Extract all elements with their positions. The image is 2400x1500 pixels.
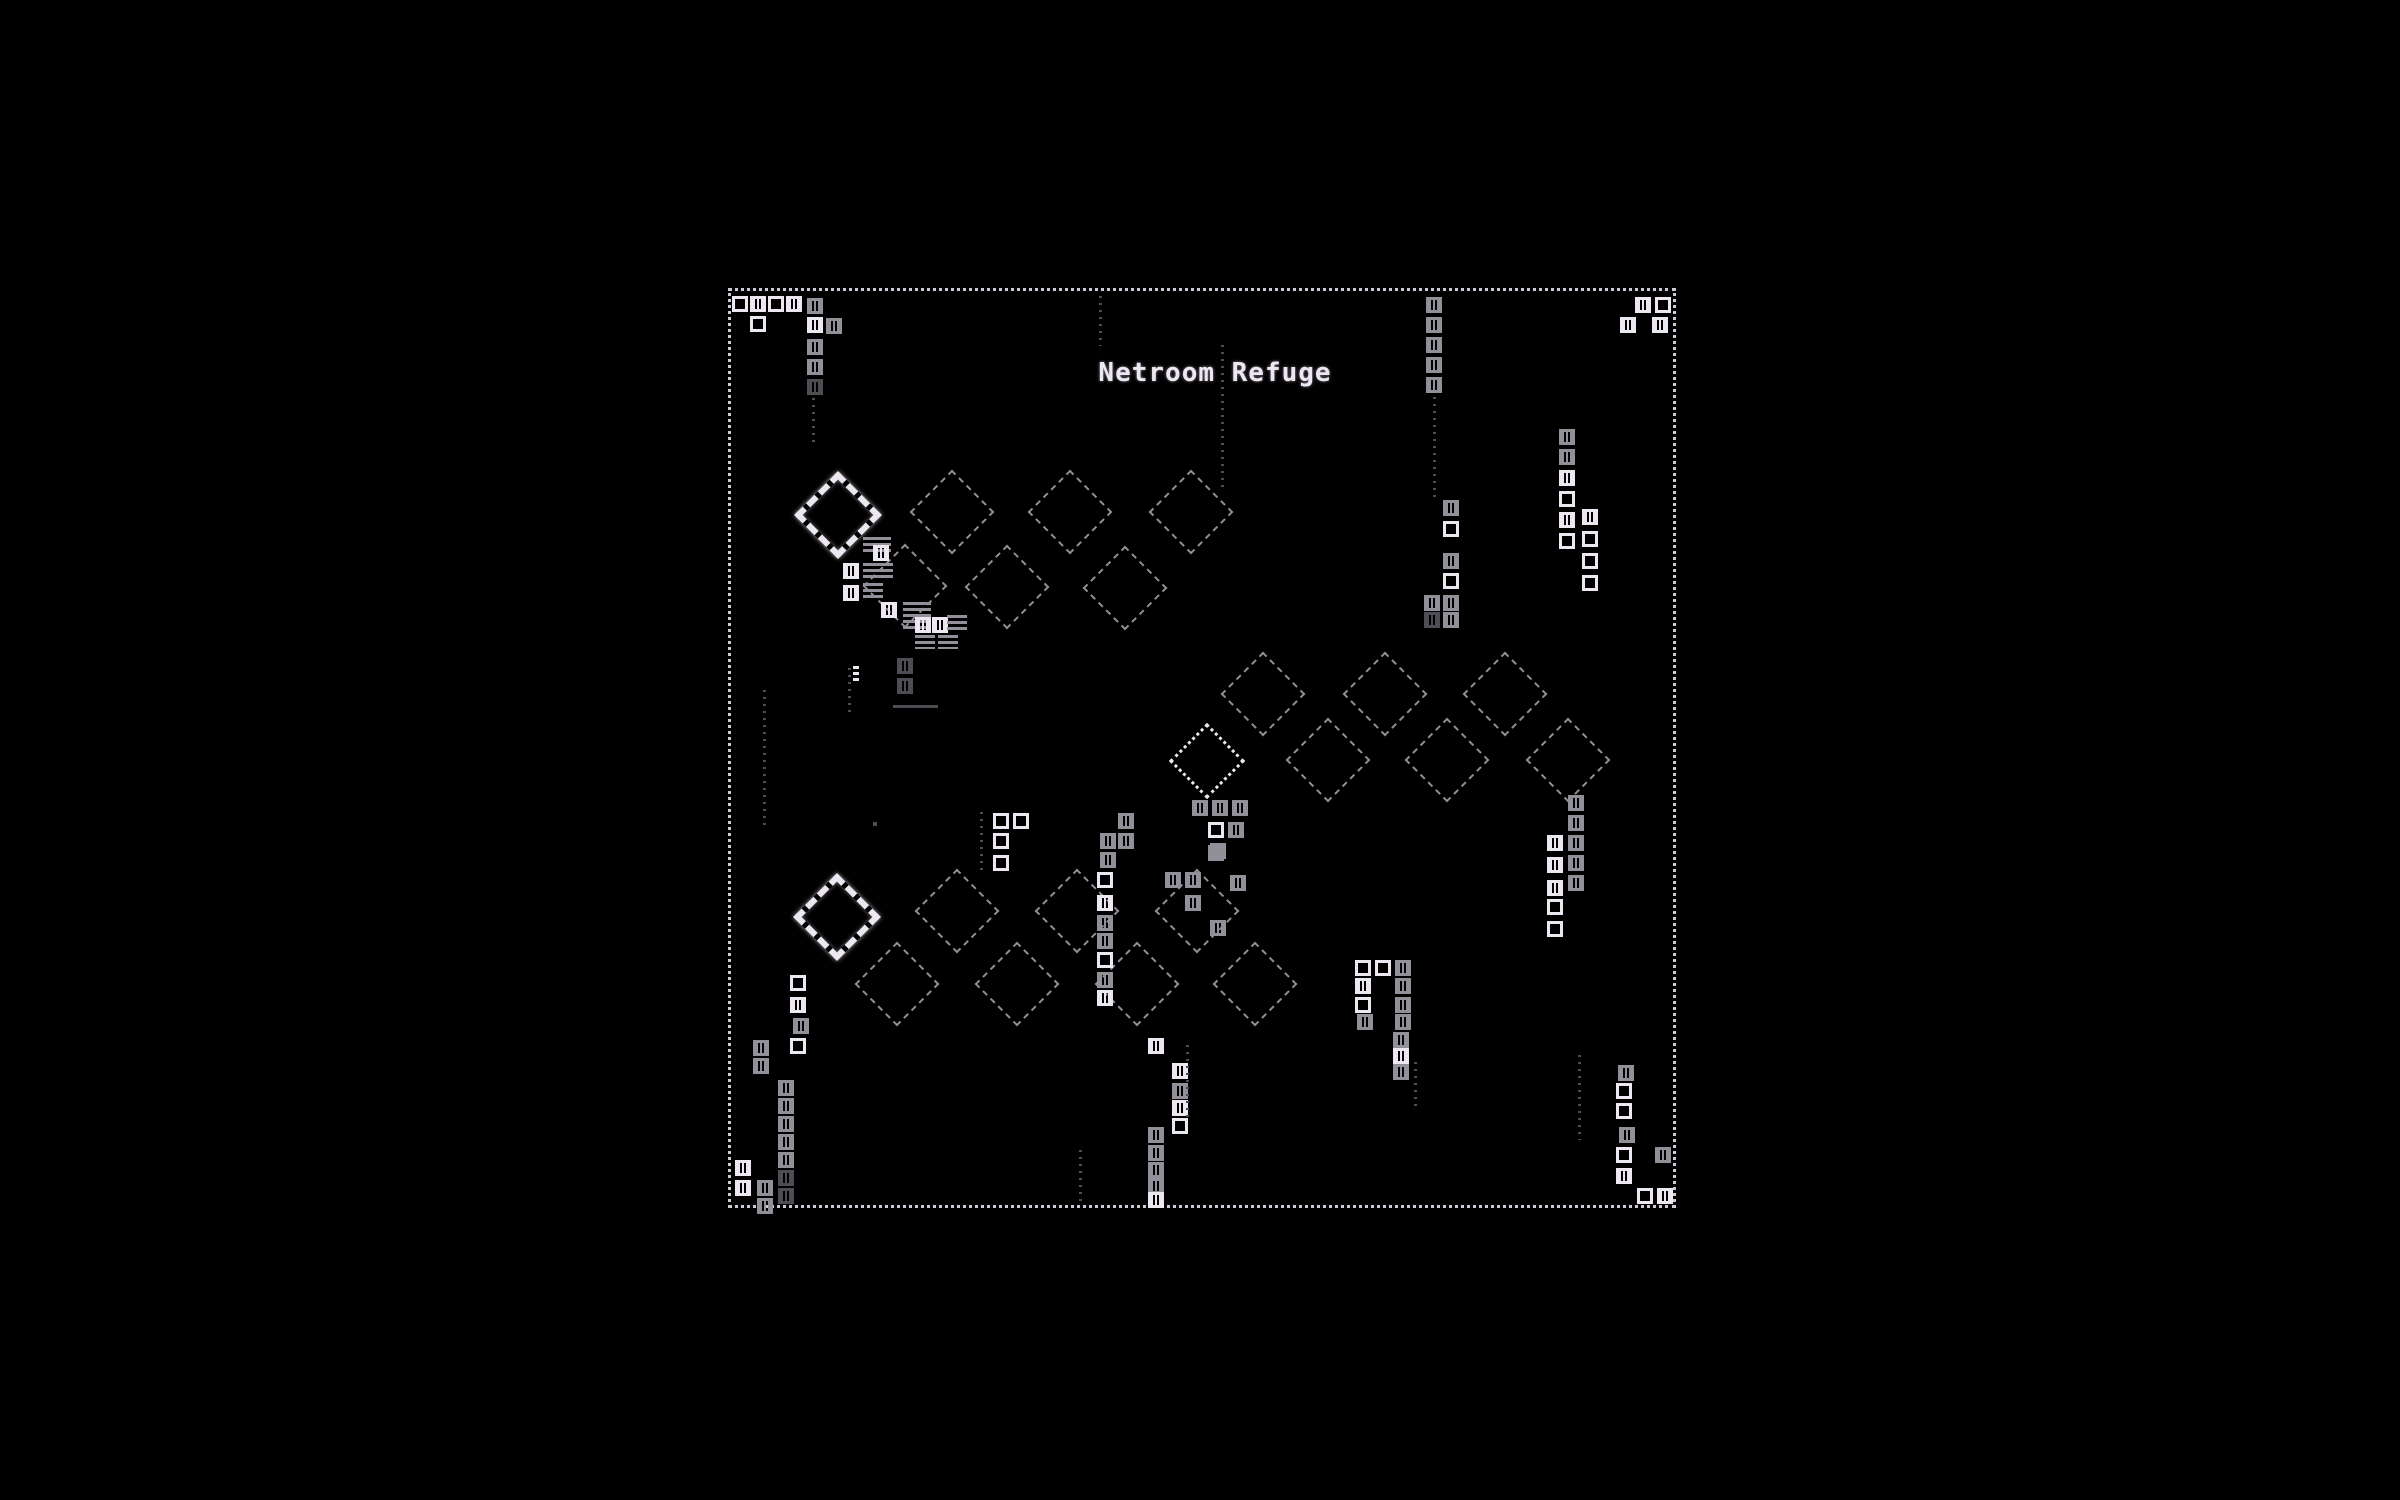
square-tile-hatched <box>1547 835 1563 851</box>
large-diamond <box>793 873 881 961</box>
square-tile-hatched <box>778 1188 794 1204</box>
square-tile-hatched <box>1165 872 1181 888</box>
square-tile-hatched <box>1148 1162 1164 1178</box>
square-tile-hatched <box>1443 612 1459 628</box>
dash-row-block <box>915 635 935 649</box>
square-tile-hatched <box>1616 1168 1632 1184</box>
square-tile-hatched <box>807 317 823 333</box>
square-tile-outline <box>768 296 784 312</box>
square-tile-hatched <box>807 359 823 375</box>
square-tile-hatched <box>1426 337 1442 353</box>
square-tile-hatched <box>1559 449 1575 465</box>
dotted-line-vertical <box>1186 1045 1189 1120</box>
dash-row-block <box>853 666 859 682</box>
square-tile-hatched <box>843 585 859 601</box>
square-tile-hatched <box>1097 972 1113 988</box>
small-diamond <box>1463 652 1548 737</box>
square-tile-outline <box>1443 573 1459 589</box>
small-diamond <box>965 545 1050 630</box>
square-tile-hatched <box>793 1018 809 1034</box>
square-tile-hatched <box>1393 1032 1409 1048</box>
square-tile-hatched <box>1100 833 1116 849</box>
square-tile-hatched <box>1148 1127 1164 1143</box>
square-tile-hatched <box>1212 800 1228 816</box>
square-tile-hatched <box>1547 880 1563 896</box>
square-tile-hatched <box>778 1098 794 1114</box>
small-diamond <box>1405 718 1490 803</box>
square-tile-outline <box>1097 952 1113 968</box>
square-tile-hatched <box>826 318 842 334</box>
dotted-line-vertical <box>1433 397 1436 497</box>
square-tile-hatched <box>1620 317 1636 333</box>
square-tile-outline <box>1375 960 1391 976</box>
large-dotted-diamond <box>1169 723 1245 799</box>
dotted-line-vertical <box>812 398 815 443</box>
square-tile-outline <box>1547 921 1563 937</box>
square-tile-hatched <box>1426 297 1442 313</box>
square-tile-hatched <box>807 298 823 314</box>
dotted-line-vertical <box>1578 1055 1581 1140</box>
square-tile-hatched <box>1097 895 1113 911</box>
square-tile-hatched <box>735 1180 751 1196</box>
small-diamond <box>1213 942 1298 1027</box>
dash-row-block <box>938 635 958 649</box>
square-tile-hatched <box>881 602 897 618</box>
square-tile-hatched <box>1424 595 1440 611</box>
square-tile-hatched <box>1192 800 1208 816</box>
square-tile-hatched <box>1232 800 1248 816</box>
square-tile-outline <box>1443 521 1459 537</box>
square-tile-hatched <box>1424 612 1440 628</box>
square-tile-outline <box>1616 1103 1632 1119</box>
dotted-line-vertical <box>980 812 983 872</box>
square-tile-hatched <box>1559 470 1575 486</box>
small-diamond <box>1286 718 1371 803</box>
square-tile-hatched <box>735 1160 751 1176</box>
square-tile-hatched <box>915 617 931 633</box>
square-tile-outline <box>993 833 1009 849</box>
ascii-art-canvas: Netroom Refuge <box>0 0 2400 1500</box>
dotted-line-vertical <box>1079 1150 1082 1205</box>
square-tile-hatched <box>1355 978 1371 994</box>
square-tile-outline <box>732 296 748 312</box>
square-tile-hatched <box>807 339 823 355</box>
square-tile-hatched <box>1395 1014 1411 1030</box>
square-tile-outline <box>1616 1083 1632 1099</box>
square-tile-hatched <box>778 1152 794 1168</box>
square-tile-hatched <box>1393 1048 1409 1064</box>
square-tile-outline <box>1547 899 1563 915</box>
square-tile-hatched <box>757 1180 773 1196</box>
square-tile-hatched <box>1230 875 1246 891</box>
square-tile-outline <box>790 975 806 991</box>
square-tile-hatched <box>778 1116 794 1132</box>
square-tile-hatched <box>873 545 889 561</box>
dotted-line-vertical <box>763 690 766 825</box>
square-tile-hatched <box>1395 960 1411 976</box>
square-tile-hatched <box>1655 1147 1671 1163</box>
square-tile-outline <box>1559 533 1575 549</box>
square-tile-hatched <box>1185 895 1201 911</box>
small-diamond <box>855 942 940 1027</box>
square-tile-hatched <box>753 1040 769 1056</box>
square-tile-hatched <box>778 1134 794 1150</box>
square-tile-outline <box>1582 531 1598 547</box>
square-tile-hatched <box>932 617 948 633</box>
square-tile-outline <box>993 855 1009 871</box>
square-tile-hatched <box>1426 377 1442 393</box>
square-tile-hatched <box>786 296 802 312</box>
square-tile-hatched <box>1097 915 1113 931</box>
square-tile-hatched <box>1559 512 1575 528</box>
dash-row-block <box>947 615 967 633</box>
square-tile-outline <box>750 316 766 332</box>
square-tile-hatched <box>790 997 806 1013</box>
small-diamond <box>1343 652 1428 737</box>
square-tile-hatched <box>1547 857 1563 873</box>
square-tile-hatched <box>1568 815 1584 831</box>
square-tile-outline <box>1582 575 1598 591</box>
square-tile-hatched <box>1568 855 1584 871</box>
small-diamond <box>910 470 995 555</box>
dash-row-block <box>893 705 938 711</box>
square-tile-outline <box>1013 813 1029 829</box>
square-tile-hatched <box>807 379 823 395</box>
square-tile-outline <box>1616 1147 1632 1163</box>
square-tile-hatched <box>1568 795 1584 811</box>
sprite-layer <box>0 0 2400 1500</box>
square-tile-hatched <box>1118 833 1134 849</box>
square-tile-hatched <box>1210 843 1226 859</box>
square-tile-hatched <box>1568 835 1584 851</box>
square-tile-hatched <box>1395 997 1411 1013</box>
square-tile-hatched <box>753 1058 769 1074</box>
square-tile-hatched <box>843 563 859 579</box>
square-tile-hatched <box>1100 852 1116 868</box>
square-tile-hatched <box>778 1080 794 1096</box>
square-tile-hatched <box>1148 1145 1164 1161</box>
square-tile-hatched <box>778 1170 794 1186</box>
small-diamond <box>1526 718 1611 803</box>
square-tile-outline <box>1655 297 1671 313</box>
square-tile-hatched <box>1357 1014 1373 1030</box>
square-tile-hatched <box>1635 297 1651 313</box>
square-tile-hatched <box>1148 1192 1164 1208</box>
square-tile-hatched <box>1393 1064 1409 1080</box>
dot <box>873 822 877 826</box>
square-tile-outline <box>1097 872 1113 888</box>
dotted-line-vertical <box>1221 345 1224 490</box>
square-tile-hatched <box>1443 595 1459 611</box>
square-tile-hatched <box>1097 990 1113 1006</box>
square-tile-hatched <box>1443 500 1459 516</box>
small-diamond <box>1221 652 1306 737</box>
dotted-line-vertical <box>1099 296 1102 346</box>
square-tile-outline <box>1208 822 1224 838</box>
square-tile-hatched <box>1443 553 1459 569</box>
square-tile-hatched <box>1148 1038 1164 1054</box>
dotted-line-vertical <box>848 668 851 713</box>
square-tile-hatched <box>1185 872 1201 888</box>
square-tile-hatched <box>1118 813 1134 829</box>
square-tile-outline <box>790 1038 806 1054</box>
dash-row-block <box>863 563 893 579</box>
small-diamond <box>915 869 1000 954</box>
square-tile-outline <box>993 813 1009 829</box>
square-tile-hatched <box>1619 1127 1635 1143</box>
square-tile-hatched <box>750 296 766 312</box>
small-diamond <box>975 942 1060 1027</box>
square-tile-outline <box>1172 1118 1188 1134</box>
square-tile-outline <box>1355 997 1371 1013</box>
square-tile-hatched <box>1559 429 1575 445</box>
square-tile-hatched <box>1426 357 1442 373</box>
square-tile-hatched <box>1582 509 1598 525</box>
small-diamond <box>1028 470 1113 555</box>
square-tile-hatched <box>757 1198 773 1214</box>
square-tile-outline <box>1637 1188 1653 1204</box>
square-tile-hatched <box>1395 978 1411 994</box>
square-tile-outline <box>1355 960 1371 976</box>
square-tile-hatched <box>1657 1188 1673 1204</box>
square-tile-hatched <box>897 678 913 694</box>
square-tile-outline <box>1582 553 1598 569</box>
square-tile-hatched <box>1426 317 1442 333</box>
dotted-line-vertical <box>1414 1062 1417 1107</box>
small-diamond <box>1083 546 1168 631</box>
square-tile-hatched <box>1618 1065 1634 1081</box>
square-tile-hatched <box>1210 920 1226 936</box>
square-tile-hatched <box>1228 822 1244 838</box>
dash-row-block <box>863 583 883 599</box>
square-tile-hatched <box>897 658 913 674</box>
square-tile-hatched <box>1097 933 1113 949</box>
square-tile-hatched <box>1568 875 1584 891</box>
square-tile-hatched <box>1652 317 1668 333</box>
square-tile-outline <box>1559 491 1575 507</box>
